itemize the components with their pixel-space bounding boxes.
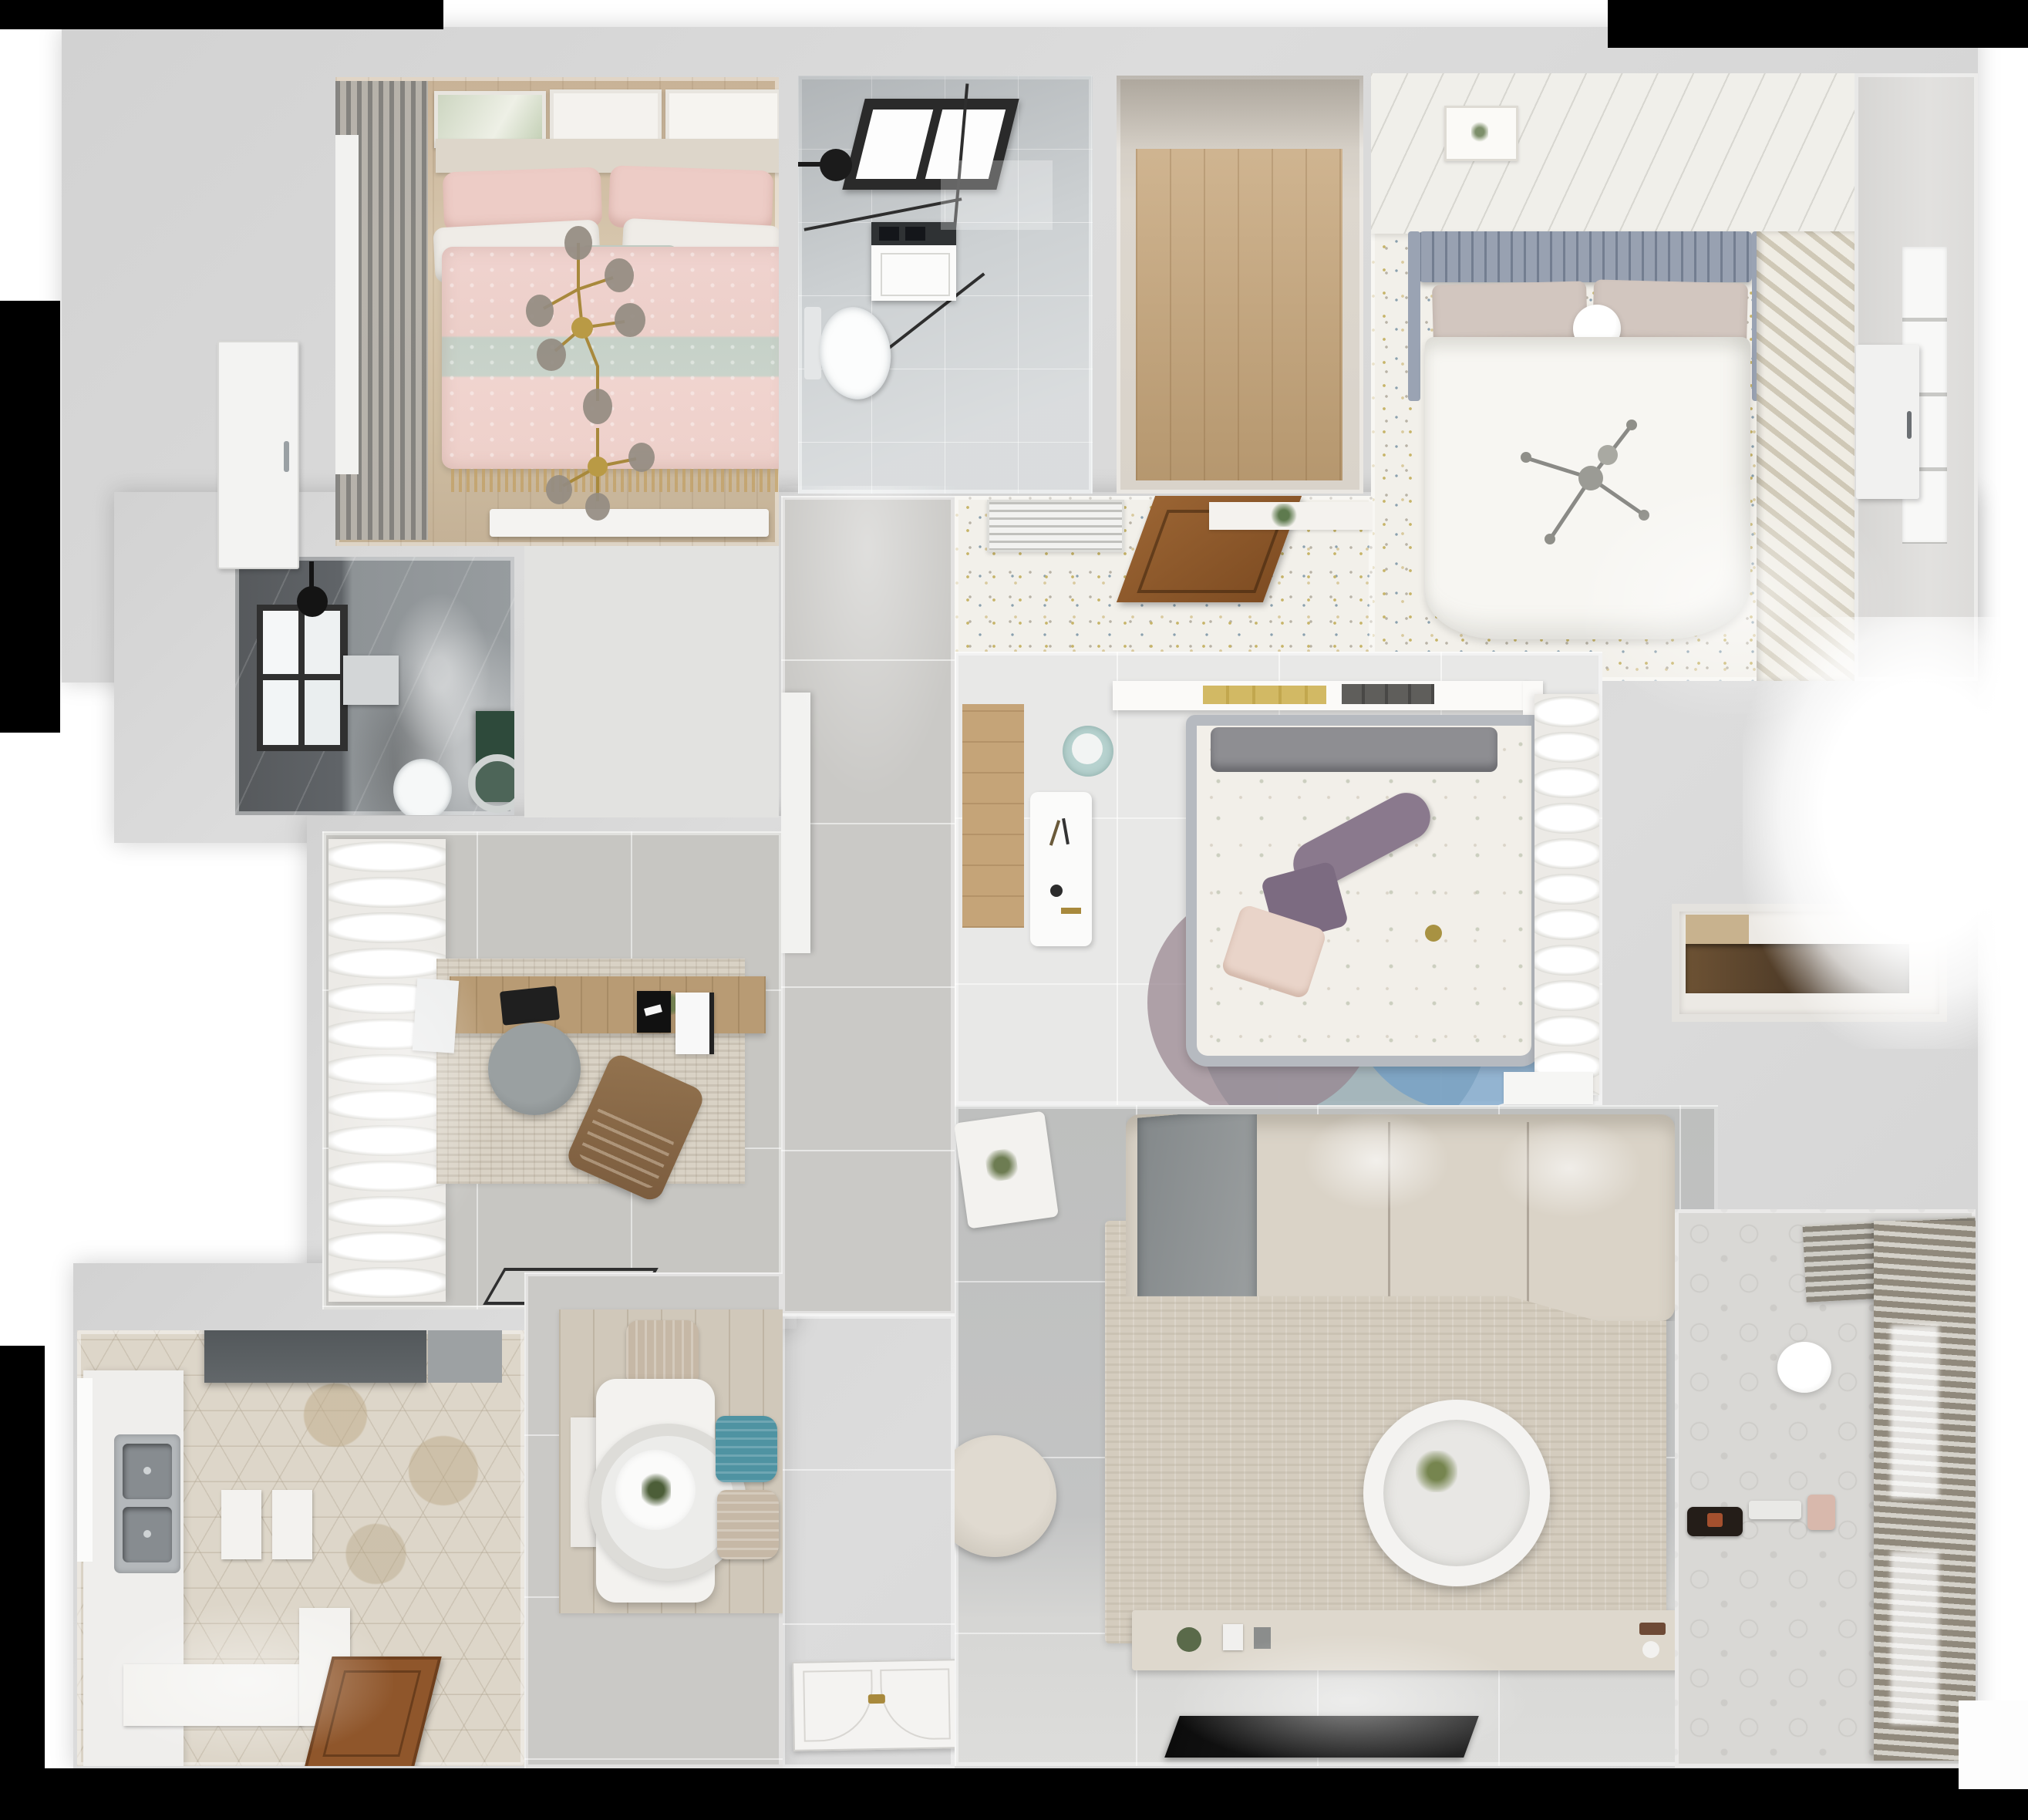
shower-tray	[941, 160, 1053, 230]
window-glow	[1891, 1325, 1939, 1498]
paper-sheet	[413, 978, 459, 1053]
window-pane	[263, 680, 298, 745]
toy-bench-white	[1749, 1501, 1801, 1519]
curtains-wavy	[328, 839, 446, 1302]
window-frame	[257, 605, 348, 751]
window-left	[77, 1378, 93, 1562]
mask-top-right	[1608, 0, 2028, 48]
ac-vent-grille	[987, 500, 1124, 552]
wood-entry-niche	[962, 704, 1024, 928]
curtains-right	[1534, 694, 1599, 1095]
venetian-blinds-right	[1874, 1221, 1976, 1761]
room-bathroom-top	[798, 76, 1093, 494]
toilet-bowl	[393, 759, 452, 815]
washing-machine	[871, 222, 956, 301]
sofa-corner	[1126, 1114, 1675, 1321]
desk-pen-icons	[1049, 820, 1060, 846]
headboard-pillows-gray	[1211, 727, 1497, 772]
photo-black	[637, 991, 671, 1033]
tv-flat-black	[1164, 1716, 1479, 1758]
dark-wood-shelf	[1686, 944, 1909, 993]
sofa-seam	[1527, 1122, 1529, 1315]
hood-side-gray	[428, 1330, 502, 1383]
room-bedroom-pink	[335, 77, 779, 546]
console-box	[1223, 1624, 1243, 1650]
photo-mark	[644, 1004, 662, 1016]
storage-niche	[1672, 904, 1947, 1022]
stick-chandelier-icon	[1506, 413, 1676, 551]
tv-console	[1132, 1610, 1693, 1670]
monitor-icon	[500, 986, 560, 1025]
mask-bottom-left-column	[0, 1346, 45, 1774]
pouf-mint-left	[1063, 726, 1113, 777]
whiteboard	[675, 993, 714, 1054]
chair-beige-bottom	[717, 1490, 779, 1559]
hall-cabinet-white	[781, 693, 810, 953]
table-plant-icon	[1416, 1451, 1457, 1492]
ceiling-lamp-round	[1777, 1342, 1831, 1393]
plant-icon	[1271, 504, 1297, 527]
island-cabinet-b	[272, 1490, 312, 1559]
room-kitchen	[77, 1330, 524, 1766]
white-patch-bottom-right	[1959, 1700, 2028, 1789]
counter-bottom	[123, 1664, 302, 1726]
desk-wood	[450, 976, 766, 1033]
plant-icon	[984, 1148, 1019, 1182]
console-knobs	[1639, 1623, 1666, 1635]
pendant-plant-icon	[642, 1473, 671, 1507]
console-plant-icon	[1177, 1627, 1201, 1652]
bed-rail-left	[1408, 231, 1420, 401]
gold-ornament-dot	[1425, 925, 1442, 942]
pouf-top	[1072, 733, 1103, 764]
wood-floor	[1136, 149, 1342, 480]
room-window-strip	[1855, 73, 1978, 681]
desk-pen-icons	[1062, 818, 1070, 844]
art-frame-botanical	[665, 89, 779, 147]
branch-chandelier-icon	[482, 235, 675, 528]
mask-top-left	[0, 0, 443, 29]
floral-duvet-pattern	[1197, 726, 1531, 1056]
shower-arm	[798, 162, 823, 167]
room-corridor	[781, 496, 955, 1315]
door-handle-icon	[1907, 411, 1912, 439]
range-hood-dark	[204, 1330, 426, 1383]
shower-head-icon	[820, 149, 852, 181]
room-closet-top	[1117, 76, 1363, 494]
wardrobe-slatted	[1757, 231, 1855, 681]
console-cup	[1642, 1641, 1659, 1658]
niche-upper-beige	[1686, 915, 1749, 944]
side-table-white	[955, 1111, 1059, 1228]
hex-accent-patches	[254, 1346, 524, 1623]
shelf-books-gold	[1203, 686, 1326, 704]
room-bathroom-dark	[235, 557, 514, 815]
wall-niche-shelf	[343, 656, 399, 705]
toy-kart	[1687, 1507, 1743, 1536]
floorplan-canvas	[0, 0, 2028, 1820]
door-handles-brass	[868, 1694, 885, 1704]
bed-frame	[1186, 715, 1542, 1067]
door-carving	[880, 1668, 951, 1741]
desk-item-dot	[1050, 885, 1063, 897]
art-frame-small	[1444, 106, 1518, 161]
window-glow	[1891, 1551, 1939, 1724]
mat-bottom-right	[1504, 1072, 1593, 1104]
room-living	[955, 1105, 1718, 1766]
room-dining	[524, 1272, 783, 1768]
mask-left-column	[0, 301, 60, 733]
window-pane	[305, 611, 340, 674]
desk-white	[1030, 792, 1092, 946]
chair-beige-top	[626, 1320, 699, 1382]
toy-kart-accent	[1707, 1513, 1723, 1527]
wall-lighter-patch	[524, 509, 779, 817]
headboard	[436, 139, 779, 173]
white-door	[1856, 345, 1919, 499]
door-white-left-wall	[217, 341, 299, 569]
room-entry	[781, 1315, 955, 1768]
shower-stem	[309, 561, 314, 589]
window-pane	[305, 680, 340, 745]
room-bedroom-center	[955, 652, 1602, 1105]
room-bedroom-white	[1371, 73, 1855, 681]
desk-item-gold	[1061, 908, 1081, 914]
sink-drain-dot	[143, 1467, 151, 1475]
shower-head-icon	[297, 586, 328, 617]
sofa-blanket-gray	[1137, 1107, 1257, 1320]
room-balcony	[1675, 1209, 1976, 1768]
art-frame-plain	[550, 89, 662, 147]
washer-door-outline	[881, 253, 950, 296]
sink-double	[114, 1434, 180, 1573]
sofa-seam	[1388, 1122, 1390, 1307]
pink-bag	[1807, 1495, 1835, 1530]
washer-dial	[905, 227, 925, 241]
entry-door-ornate	[792, 1659, 955, 1751]
ledge-with-plant	[1209, 502, 1373, 530]
door-handle-icon	[284, 441, 289, 472]
washer-dial	[879, 227, 899, 241]
island-cabinet-a	[221, 1490, 261, 1559]
toilet-tank	[804, 307, 821, 379]
coffee-table-round	[1363, 1400, 1550, 1586]
window-sill	[335, 135, 359, 474]
mask-bottom-band	[0, 1768, 2028, 1820]
headboard-tufted	[1419, 231, 1752, 282]
console-box	[1254, 1627, 1271, 1649]
skylight-pane	[856, 110, 933, 179]
ceiling-shadow	[1117, 76, 1363, 149]
shelf-books-dark	[1342, 684, 1434, 704]
door-carving	[803, 1670, 874, 1742]
chair-teal-right	[716, 1416, 777, 1482]
window-pane	[263, 611, 298, 674]
round-chair-gray	[488, 1023, 581, 1115]
door-panel-line	[322, 1670, 421, 1757]
sink-drain-dot	[143, 1530, 151, 1538]
room-study	[322, 831, 783, 1309]
frame-plant-sketch	[1471, 120, 1488, 143]
